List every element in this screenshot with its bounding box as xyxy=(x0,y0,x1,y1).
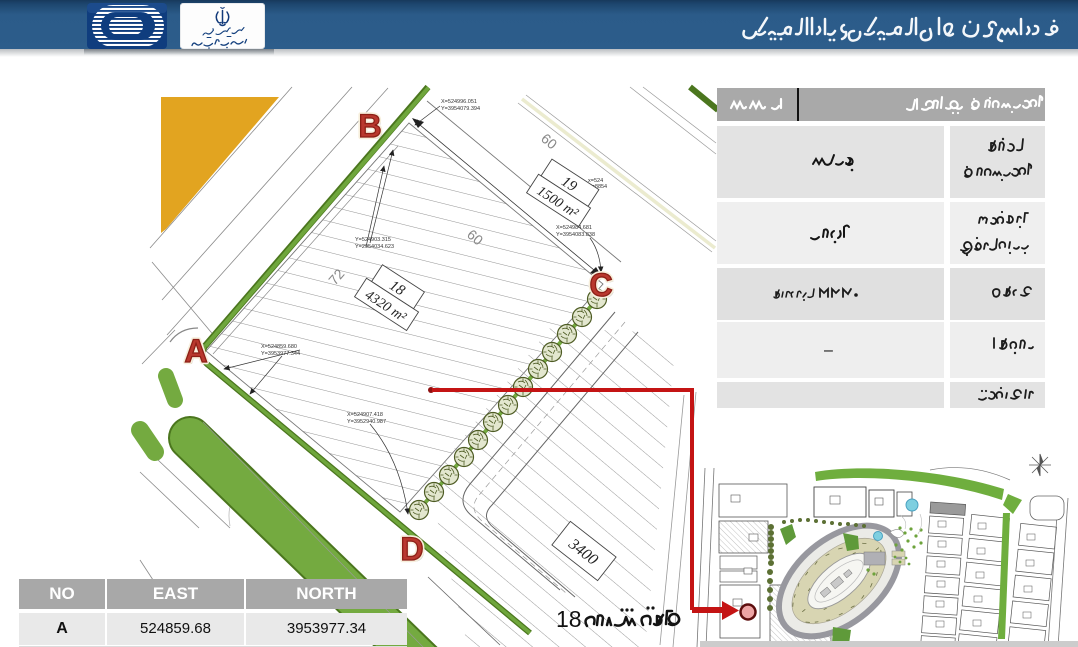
svg-text:Y=3954083.838: Y=3954083.838 xyxy=(556,232,595,238)
svg-text:Y=3953977.344: Y=3953977.344 xyxy=(261,351,300,357)
svg-text:Y=3954079.394: Y=3954079.394 xyxy=(441,106,480,112)
svg-text:X=524996.051: X=524996.051 xyxy=(441,99,477,105)
svg-text:Y=3952940.987: Y=3952940.987 xyxy=(347,419,386,425)
svg-text:18: 18 xyxy=(556,606,582,632)
svg-text:B: B xyxy=(358,108,381,144)
svg-text:X=524984.681: X=524984.681 xyxy=(556,225,592,231)
svg-text:Y=2954034.623: Y=2954034.623 xyxy=(355,244,394,250)
svg-text:D: D xyxy=(400,531,423,567)
svg-text:A: A xyxy=(184,333,207,369)
svg-text:X=524907.418: X=524907.418 xyxy=(347,412,383,418)
svg-text:Y=524903.315: Y=524903.315 xyxy=(355,237,391,243)
svg-text:X=524859.680: X=524859.680 xyxy=(261,344,297,350)
svg-text:C: C xyxy=(589,267,612,303)
